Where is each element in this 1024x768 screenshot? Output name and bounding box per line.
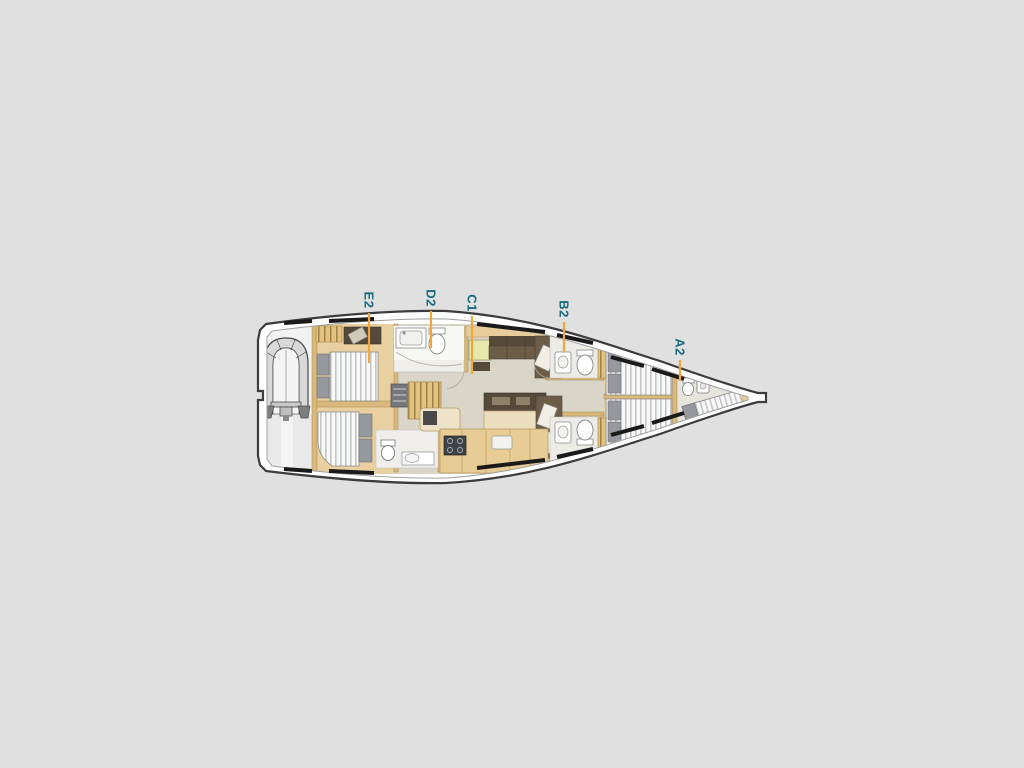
bed-pillow — [317, 354, 329, 375]
interior-layout — [258, 324, 776, 474]
yacht-plan-drawing: E2 D2 C1 B2 A2 — [0, 0, 1024, 768]
cabin-label-e2: E2 — [362, 292, 377, 309]
toilet-icon — [577, 355, 593, 375]
faucet-dot — [403, 332, 406, 335]
outboard-skeg — [283, 416, 289, 421]
island-sink-unit — [423, 411, 437, 425]
sideboard-inlay — [492, 397, 510, 405]
toilet-icon — [577, 420, 593, 440]
galley-sink — [492, 436, 512, 449]
cabin-label-d2: D2 — [424, 289, 439, 307]
stove-icon — [444, 436, 466, 455]
yacht-layout-canvas: E2 D2 C1 B2 A2 — [0, 0, 1024, 768]
sink-basin — [558, 426, 568, 438]
shelf-unit — [316, 326, 342, 342]
sink-icon — [405, 454, 419, 463]
sideboard-inlay — [516, 397, 530, 405]
sink-basin — [558, 356, 568, 368]
bed-pillow — [608, 401, 621, 420]
toilet-icon — [382, 446, 395, 461]
bed-pillow — [608, 374, 621, 393]
toilet-icon — [683, 383, 694, 396]
cabin-label-c1: C1 — [465, 294, 480, 312]
stern-platform-hatch — [281, 416, 293, 470]
aft-cabin-port — [316, 326, 381, 401]
nav-seat — [471, 362, 490, 371]
aft-bathroom — [376, 430, 438, 468]
cabin-label-a2: A2 — [673, 338, 688, 356]
cabin-label-b2: B2 — [557, 300, 572, 318]
dinghy-icon — [262, 338, 310, 421]
dinghy-transom — [271, 402, 301, 407]
bed-pillow — [359, 414, 372, 437]
aft-cabin-starboard — [318, 412, 372, 466]
double-bed-mattress — [318, 412, 359, 466]
outboard-motor-icon — [280, 407, 292, 416]
bed-pillow — [317, 377, 329, 398]
double-bed-mattress — [330, 352, 378, 401]
bed-pillow — [359, 439, 372, 462]
